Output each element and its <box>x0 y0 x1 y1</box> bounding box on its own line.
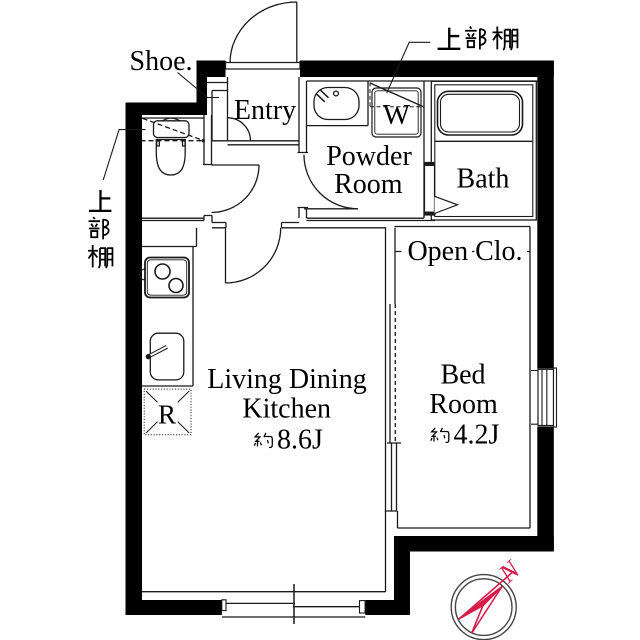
svg-text:Room: Room <box>334 169 403 200</box>
svg-text:Powder: Powder <box>326 141 412 172</box>
svg-text:Kitchen: Kitchen <box>242 393 331 424</box>
svg-text:Shoe.: Shoe. <box>130 46 193 77</box>
svg-text:R: R <box>158 400 176 430</box>
svg-text:Bed: Bed <box>440 360 485 391</box>
svg-text:8.6J: 8.6J <box>277 425 323 456</box>
svg-text:Room: Room <box>429 389 498 420</box>
svg-text:4.2J: 4.2J <box>454 420 500 451</box>
svg-text:W: W <box>383 99 411 131</box>
svg-text:Entry: Entry <box>234 95 296 126</box>
svg-text:Living Dining: Living Dining <box>207 364 366 395</box>
svg-text:Open Clo.: Open Clo. <box>407 236 522 267</box>
svg-text:Bath: Bath <box>457 164 510 195</box>
